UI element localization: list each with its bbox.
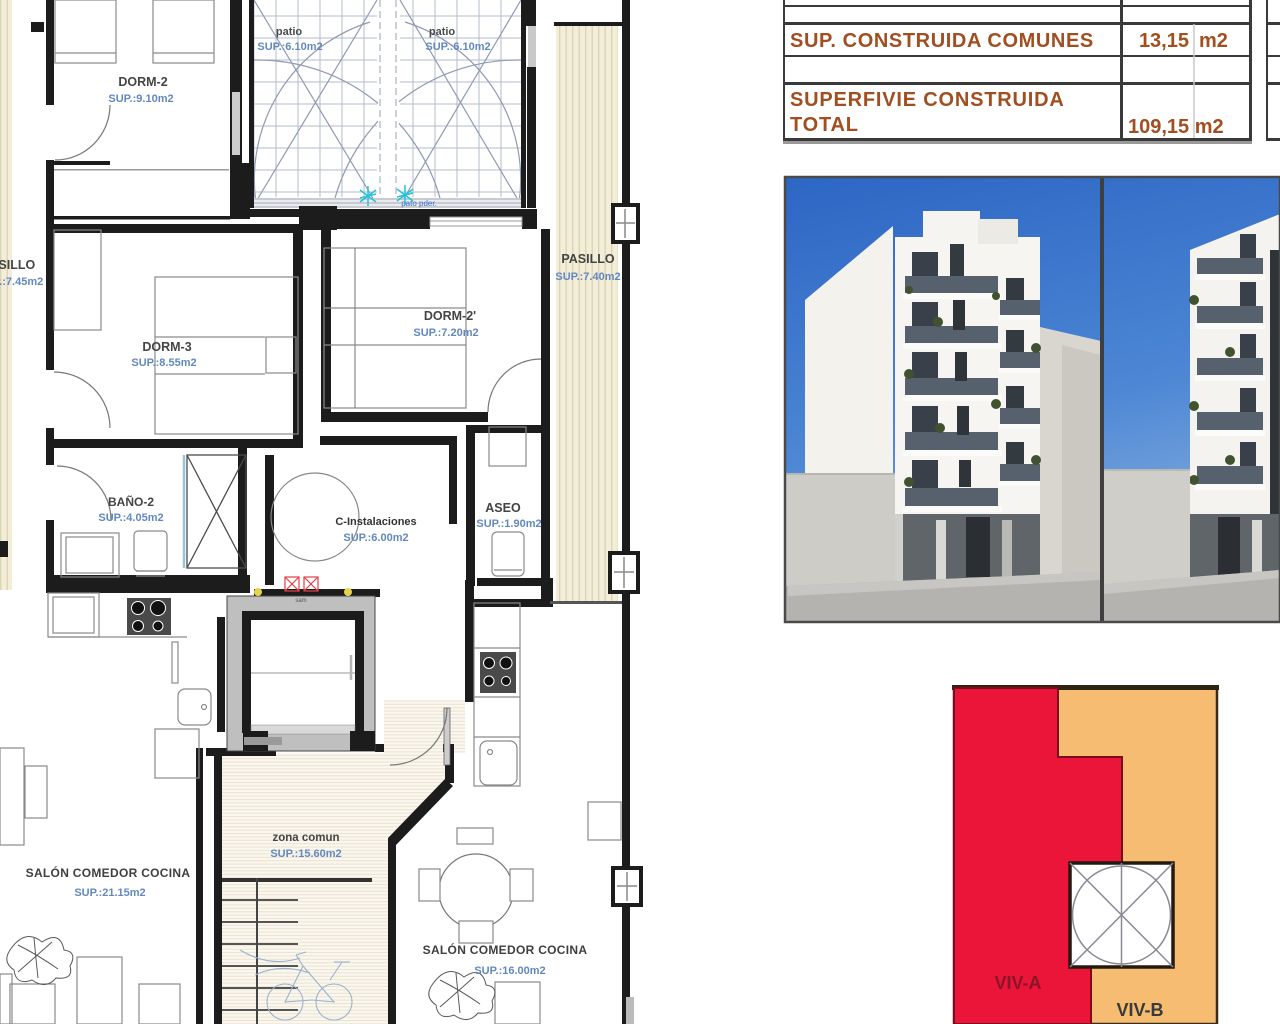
svg-text:ASEO: ASEO	[485, 501, 521, 515]
svg-text:SUP.:8.55m2: SUP.:8.55m2	[131, 357, 196, 369]
svg-text:C-Instalaciones: C-Instalaciones	[335, 516, 416, 528]
svg-text:SUP.:6.10m2: SUP.:6.10m2	[257, 41, 322, 53]
svg-text:SUP.:6.10m2: SUP.:6.10m2	[425, 41, 490, 53]
svg-text:SUP.:21.15m2: SUP.:21.15m2	[74, 887, 145, 899]
svg-text:SUP.:9.10m2: SUP.:9.10m2	[108, 93, 173, 105]
svg-text:SUP.:1.90m2: SUP.:1.90m2	[476, 518, 541, 530]
svg-text:patio: patio	[276, 26, 303, 38]
svg-text:SUP.:7.20m2: SUP.:7.20m2	[413, 327, 478, 339]
svg-text:sam: sam	[295, 598, 306, 604]
svg-text:TOTAL: TOTAL	[790, 114, 859, 136]
svg-text:SUP. CONSTRUIDA COMUNES: SUP. CONSTRUIDA COMUNES	[790, 30, 1094, 52]
svg-text:pato pder.: pato pder.	[401, 199, 437, 208]
svg-text:VIV-A: VIV-A	[994, 973, 1041, 993]
svg-text:DORM-3: DORM-3	[142, 340, 191, 354]
svg-text:SUP.:7.40m2: SUP.:7.40m2	[555, 271, 620, 283]
svg-text:SUPERFIVIE CONSTRUIDA: SUPERFIVIE CONSTRUIDA	[790, 89, 1065, 111]
svg-text:SUP.:6.00m2: SUP.:6.00m2	[343, 532, 408, 544]
svg-text:109,15 m2: 109,15 m2	[1128, 116, 1224, 138]
svg-text:SUP.:4.05m2: SUP.:4.05m2	[98, 512, 163, 524]
svg-text:SUP.:7.45m2: SUP.:7.45m2	[0, 276, 43, 288]
svg-text:PASILLO: PASILLO	[0, 258, 36, 272]
svg-text:BAÑO-2: BAÑO-2	[108, 494, 154, 509]
svg-text:PASILLO: PASILLO	[561, 252, 615, 266]
svg-text:DORM-2: DORM-2	[118, 75, 167, 89]
svg-text:13,15: 13,15	[1139, 30, 1189, 52]
svg-text:VIV-B: VIV-B	[1116, 1000, 1163, 1020]
svg-text:SALÓN COMEDOR COCINA: SALÓN COMEDOR COCINA	[26, 865, 191, 880]
svg-text:SUP.:16.00m2: SUP.:16.00m2	[474, 965, 545, 977]
svg-text:zona comun: zona comun	[272, 832, 339, 844]
svg-text:patio: patio	[429, 26, 456, 38]
svg-text:DORM-2': DORM-2'	[424, 309, 476, 323]
svg-text:m2: m2	[1199, 30, 1228, 52]
svg-text:SALÓN COMEDOR COCINA: SALÓN COMEDOR COCINA	[423, 942, 588, 957]
svg-text:SUP.:15.60m2: SUP.:15.60m2	[270, 848, 341, 860]
